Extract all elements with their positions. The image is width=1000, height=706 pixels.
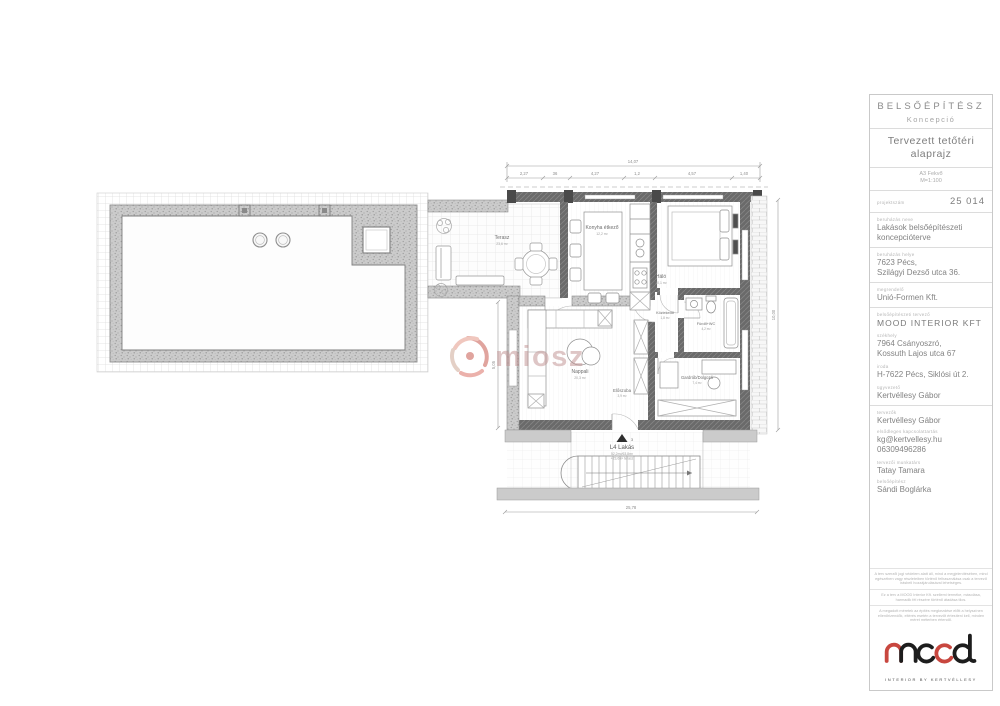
washbasin-icon (686, 298, 702, 310)
logo-tagline: INTERIOR BY KERTVÉLLESY (870, 677, 992, 682)
svg-text:25,78: 25,78 (626, 505, 637, 510)
svg-text:+23,6m² terasz: +23,6m² terasz (611, 457, 634, 461)
svg-text:3,9 m²: 3,9 m² (617, 394, 626, 398)
fine-print-paragraph: A megadott méretek az építés megkezdése … (870, 605, 992, 626)
roof-vent (253, 233, 267, 247)
room-label-eloszoba: Előszoba (613, 388, 632, 393)
project-name-section: beruházás neve Lakások belsőépítészeti k… (870, 213, 992, 248)
project-name-label: beruházás neve (877, 217, 985, 222)
svg-text:52,2m²/63,8m²: 52,2m²/63,8m² (611, 452, 634, 456)
svg-text:12,2 m²: 12,2 m² (596, 232, 608, 236)
associate-name: Tatay Tamara (877, 466, 985, 476)
client-label: megrendelő (877, 287, 985, 292)
client-section: megrendelő Unió-Formen Kft. (870, 283, 992, 308)
client-name: Unió-Formen Kft. (877, 293, 985, 303)
project-number-section: projektszám 25 014 (870, 191, 992, 213)
bathtub-icon (724, 298, 738, 348)
paper-size: A3 Fekvő (870, 171, 992, 178)
svg-text:36: 36 (553, 171, 558, 176)
svg-text:L4 Lakás: L4 Lakás (610, 445, 634, 451)
svg-text:4,27: 4,27 (591, 171, 600, 176)
office-address: H-7622 Pécs, Siklósi út 2. (877, 370, 985, 380)
project-number-label: projektszám (877, 200, 905, 205)
svg-text:4,57: 4,57 (688, 171, 697, 176)
planners-section: tervezők Kertvéllesy Gábor elsődleges ka… (870, 406, 992, 499)
svg-text:10,00: 10,00 (771, 309, 776, 320)
discipline-title: BELSŐÉPÍTÉSZ (877, 101, 985, 112)
room-label-halo: Háló (656, 274, 667, 280)
interior-designer-name: Sándi Boglárka (877, 485, 985, 495)
project-name: Lakások belsőépítészeti koncepcióterve (877, 223, 985, 243)
contact-label: elsődleges kapcsolattartás (877, 429, 985, 434)
room-label-konyha: Konyha étkező (585, 225, 618, 231)
planner-name: Kertvéllesy Gábor (877, 416, 985, 426)
svg-text:10,1 m²: 10,1 m² (655, 281, 667, 285)
location-line2: Szilágyi Dezső utca 36. (877, 268, 985, 278)
room-label-kozlekedo: Közlekedő (656, 311, 674, 315)
room-label-terasz: Terasz (495, 235, 510, 241)
terrace-sofa (436, 246, 451, 280)
svg-text:20,3 m²: 20,3 m² (574, 376, 586, 380)
location-section: beruházás helye 7623 Pécs, Szilágyi Dezs… (870, 248, 992, 283)
drawing-title-section: Tervezett tetőtéri alaprajz (870, 129, 992, 168)
svg-text:4,2 m²: 4,2 m² (701, 327, 710, 331)
drawing-title: Tervezett tetőtéri alaprajz (877, 133, 985, 163)
project-number: 25 014 (950, 196, 985, 207)
drawing-sheet: 14,07 2,27 36 4,27 1,2 4,57 1,40 10,00 5… (0, 0, 1000, 706)
phase-label: Koncepció (877, 115, 985, 124)
designer-label: belsőépítészeti tervező (877, 312, 985, 317)
mood-logo-icon (881, 632, 981, 670)
scale: M=1:100 (870, 178, 992, 185)
designer-company: MOOD INTERIOR KFT (877, 318, 985, 328)
planners-label: tervezők (877, 410, 985, 415)
fine-print-paragraph: A terv szerzői jogi védelem alatt áll, m… (870, 568, 992, 589)
hq-line2: Kossuth Lajos utca 67 (877, 349, 985, 359)
floor-plan-drawing: 14,07 2,27 36 4,27 1,2 4,57 1,40 10,00 5… (0, 0, 868, 706)
svg-text:7,4 m²: 7,4 m² (692, 381, 701, 385)
svg-text:1,2: 1,2 (634, 171, 640, 176)
hq-label: székhely (877, 333, 985, 338)
ceo-name: Kertvéllesy Gábor (877, 391, 985, 401)
mood-logo: INTERIOR BY KERTVÉLLESY (870, 626, 992, 690)
location-label: beruházás helye (877, 252, 985, 257)
skylight-square (363, 227, 390, 253)
terrace-bench (456, 276, 504, 285)
svg-text:2,27: 2,27 (520, 171, 529, 176)
miosz-emblem-icon (452, 338, 487, 375)
svg-text:23,6 m²: 23,6 m² (496, 242, 508, 246)
terrace (428, 200, 562, 298)
room-label-gardrob: Gardrób/Dolgozó (681, 375, 714, 380)
associate-label: tervezői munkatárs (877, 460, 985, 465)
toilet-icon (706, 296, 716, 301)
svg-text:1,8 m²: 1,8 m² (660, 316, 669, 320)
title-block-header: BELSŐÉPÍTÉSZ Koncepció (870, 95, 992, 129)
hq-line1: 7964 Csányoszró, (877, 339, 985, 349)
desk (702, 360, 736, 374)
roof-vent (276, 233, 290, 247)
interior-designer-label: belsőépítész (877, 479, 985, 484)
miosz-watermark-text: miosz (495, 341, 585, 373)
room-label-furdo: Fürdő+WC (697, 322, 716, 326)
ceo-label: ügyvezető (877, 385, 985, 390)
dining-table (584, 212, 622, 290)
fine-print-section: A terv szerzői jogi védelem alatt áll, m… (870, 568, 992, 626)
contact-phone: 06309496286 (877, 445, 985, 455)
office-label: iroda (877, 364, 985, 369)
location-line1: 7623 Pécs, (877, 258, 985, 268)
watermark: miosz (452, 338, 585, 375)
format-section: A3 Fekvő M=1:100 (870, 168, 992, 191)
roof-plan (97, 193, 428, 372)
fine-print-paragraph: Ez a terv a MOOD Interior Kft. szellemi … (870, 589, 992, 605)
title-block: BELSŐÉPÍTÉSZ Koncepció Tervezett tetőtér… (869, 94, 993, 691)
contact-email: kg@kertvellesy.hu (877, 435, 985, 445)
svg-text:1,40: 1,40 (740, 171, 749, 176)
designer-section: belsőépítészeti tervező MOOD INTERIOR KF… (870, 308, 992, 406)
svg-text:14,07: 14,07 (628, 159, 639, 164)
